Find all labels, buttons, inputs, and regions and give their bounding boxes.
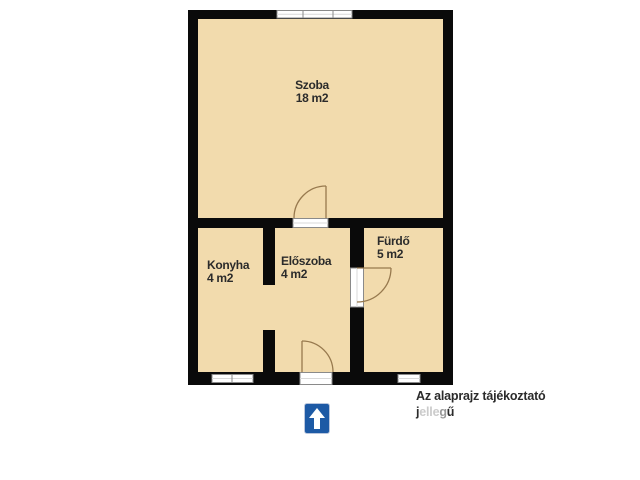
annotation-line2: jellegű	[416, 404, 545, 420]
window-bottom-right-icon	[398, 375, 420, 383]
floor-plan-page: Szoba 18 m2 Konyha 4 m2 Előszoba 4 m2 Fü…	[0, 0, 640, 480]
door-opening-szoba	[293, 219, 328, 228]
wall-right	[443, 10, 453, 385]
disclaimer-line1: Az alaprajz tájékoztató	[416, 388, 545, 404]
room-label-furdo: Fürdő 5 m2	[377, 235, 410, 261]
window-bottom-left-icon	[212, 375, 253, 383]
room-area: 4 m2	[207, 272, 249, 285]
room-area: 4 m2	[281, 268, 331, 281]
room-label-konyha: Konyha 4 m2	[207, 259, 249, 285]
disclaimer-text: Az alaprajz tájékoztató jellegű	[416, 388, 545, 420]
room-label-szoba: Szoba 18 m2	[252, 79, 372, 105]
room-area: 18 m2	[252, 92, 372, 105]
floor-area	[198, 19, 443, 372]
up-arrow-icon	[307, 407, 327, 430]
window-top-icon	[277, 11, 352, 19]
room-area: 5 m2	[377, 248, 410, 261]
north-arrow-sign	[304, 403, 330, 434]
room-label-eloszoba: Előszoba 4 m2	[281, 255, 331, 281]
wall-left	[188, 10, 198, 385]
wall-furdo-lower	[350, 307, 364, 372]
wall-furdo-upper	[350, 228, 364, 268]
wall-konyha-upper	[263, 228, 275, 285]
wall-konyha-lower	[263, 330, 275, 372]
door-opening-entrance	[300, 373, 332, 385]
